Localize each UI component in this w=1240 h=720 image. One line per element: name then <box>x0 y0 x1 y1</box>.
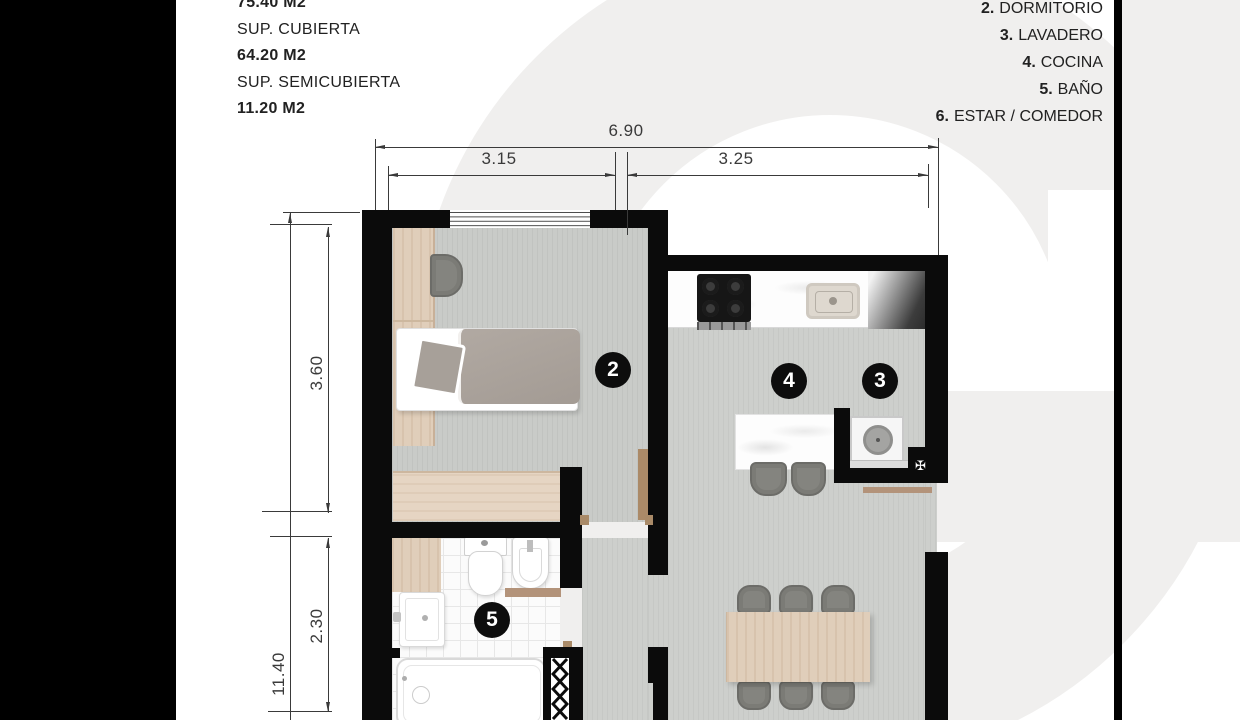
legend-number: 5. <box>1039 81 1052 98</box>
legend-label: LAVADERO <box>1018 27 1103 44</box>
toilet-button <box>481 540 488 546</box>
bedroom-window <box>450 210 590 228</box>
legend-item-bano: 5.BAÑO <box>936 81 1103 100</box>
legend-label: COCINA <box>1041 54 1103 71</box>
dim-line <box>290 213 291 720</box>
washer-drum-dot <box>876 438 880 442</box>
living-floor-edge <box>925 483 937 552</box>
dim-line <box>375 147 938 148</box>
dim-arrow <box>627 173 637 177</box>
dining-chair <box>779 585 813 614</box>
wardrobe-seam <box>393 320 433 322</box>
burner <box>702 278 719 295</box>
floor-plan-page: ✠ 2 4 3 5 6.90 3.15 3.25 3.60 2.30 11.40… <box>0 0 1240 720</box>
bathtub-dot <box>402 676 407 681</box>
bed-duvet <box>458 329 580 404</box>
legend-item-estar-comedor: 6.ESTAR / COMEDOR <box>936 108 1103 127</box>
legend-item-lavadero: 3.LAVADERO <box>936 27 1103 46</box>
stat-semicovered-label: SUP. SEMICUBIERTA <box>237 74 400 93</box>
watermark-right-strip <box>1122 0 1240 542</box>
bedroom-chair <box>430 254 463 297</box>
washing-machine <box>850 416 904 462</box>
dining-chair <box>821 681 855 710</box>
wall-left <box>362 210 392 720</box>
dining-chair <box>821 585 855 614</box>
legend-number: 4. <box>1022 54 1035 71</box>
dim-ext <box>938 138 939 255</box>
wall-mid-stub <box>653 683 668 720</box>
bathtub <box>396 658 546 720</box>
toilet-bowl <box>468 551 503 596</box>
wall-kitchen-top <box>648 255 948 271</box>
legend-number: 3. <box>1000 27 1013 44</box>
sink-drain <box>829 297 837 305</box>
sink-drain <box>422 615 428 621</box>
bedroom-door-leaf <box>638 449 648 520</box>
dining-chair <box>779 681 813 710</box>
wall-right-lower <box>925 552 948 720</box>
shaft-hatch-icon <box>551 658 569 720</box>
wall-laundry-vertical <box>834 408 850 483</box>
legend-item-dormitorio: 2.DORMITORIO <box>936 0 1103 19</box>
wall-right-upper <box>925 255 948 447</box>
burner <box>727 300 744 317</box>
dim-bathroom-height: 2.30 <box>307 596 327 656</box>
dim-tick <box>262 511 332 512</box>
dim-total-height: 11.40 <box>269 644 289 704</box>
legend-number: 6. <box>936 108 949 125</box>
bidet-faucet <box>527 540 533 552</box>
dim-line <box>388 175 615 176</box>
bidet-basin <box>519 548 542 582</box>
legend-label: DORMITORIO <box>999 0 1103 17</box>
dim-ext <box>627 152 628 235</box>
bathroom-door-leaf <box>505 588 561 597</box>
window-sill-right <box>863 487 932 493</box>
wall-shaft-channel <box>551 658 569 720</box>
dim-tick <box>268 711 332 712</box>
bedroom-desk <box>393 471 567 521</box>
surface-stats: 75.40 M2 SUP. CUBIERTA 64.20 M2 SUP. SEM… <box>237 0 400 127</box>
room-badge-bedroom: 2 <box>595 352 631 388</box>
dim-arrow <box>928 145 938 149</box>
legend-item-cocina: 4.COCINA <box>936 54 1103 73</box>
door-hinge-nub <box>645 515 653 525</box>
burner <box>727 278 744 295</box>
legend-label: BAÑO <box>1058 81 1103 98</box>
wall-mid-seg2 <box>648 647 668 683</box>
dim-arrow <box>388 173 398 177</box>
dim-tick <box>270 224 332 225</box>
stove-controls <box>697 322 751 330</box>
wall-bathroom-right <box>560 467 582 588</box>
dining-chair <box>737 585 771 614</box>
bathroom-counter <box>392 534 441 592</box>
stat-semicovered-area: 11.20 M2 <box>237 100 400 119</box>
bathtub-drain <box>412 686 430 704</box>
dim-tick <box>270 536 332 537</box>
room-badge-kitchen: 4 <box>771 363 807 399</box>
door-hinge-nub <box>580 515 589 525</box>
fridge <box>868 271 925 329</box>
corridor-floor <box>582 538 648 720</box>
dim-total-width: 6.90 <box>596 121 656 141</box>
dim-living-width: 3.25 <box>706 149 766 169</box>
dim-arrow <box>288 213 292 223</box>
dim-line <box>328 227 329 513</box>
dim-arrow <box>375 145 385 149</box>
wall-top-bedroom-left <box>362 210 450 228</box>
dining-table <box>726 612 870 682</box>
dim-ext <box>615 152 616 210</box>
dim-bedroom-height: 3.60 <box>307 343 327 403</box>
dim-arrow <box>918 173 928 177</box>
legend-number: 2. <box>981 0 994 17</box>
dim-arrow <box>326 538 330 548</box>
dim-ext <box>388 166 389 210</box>
dim-line <box>328 538 329 712</box>
stat-total-area: 75.40 M2 <box>237 0 400 13</box>
bed-pillow <box>411 337 466 396</box>
left-black-bar <box>0 0 176 720</box>
room-legend: 2.DORMITORIO 3.LAVADERO 4.COCINA 5.BAÑO … <box>936 0 1103 135</box>
dim-tick <box>283 212 360 213</box>
bathroom-sink <box>399 592 445 647</box>
stool <box>750 462 787 496</box>
bidet <box>512 537 549 589</box>
dim-bedroom-width: 3.15 <box>469 149 529 169</box>
dim-arrow <box>605 173 615 177</box>
stat-covered-label: SUP. CUBIERTA <box>237 21 400 40</box>
watermark-patch <box>1048 190 1114 391</box>
right-black-bar <box>1114 0 1122 720</box>
drain-cross-icon: ✠ <box>915 459 926 472</box>
watermark-band <box>933 391 1114 542</box>
dim-ext <box>375 139 376 210</box>
room-badge-bathroom: 5 <box>474 602 510 638</box>
burner <box>702 300 719 317</box>
legend-label: ESTAR / COMEDOR <box>954 108 1103 125</box>
dining-chair <box>737 681 771 710</box>
stat-covered-area: 64.20 M2 <box>237 47 400 66</box>
door-hinge-nub <box>563 641 572 647</box>
sink-faucet <box>393 612 401 622</box>
stool <box>791 462 826 496</box>
stove <box>697 274 751 322</box>
dim-line <box>627 175 928 176</box>
kitchen-sink <box>806 283 860 319</box>
wall-bedroom-south <box>362 522 582 538</box>
dim-ext <box>928 164 929 208</box>
dim-arrow <box>326 227 330 237</box>
wall-pier-small <box>392 648 400 658</box>
room-badge-laundry: 3 <box>862 363 898 399</box>
